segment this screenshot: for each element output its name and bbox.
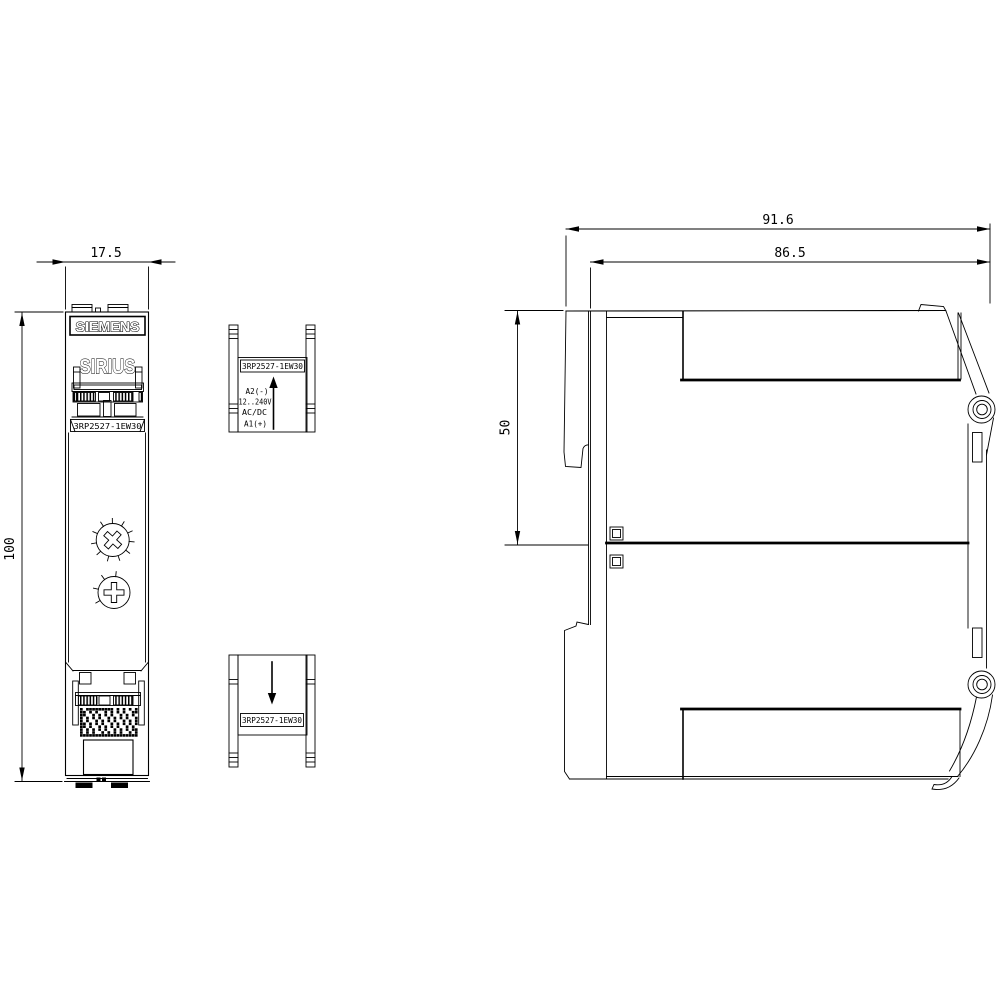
lower-hatch-right <box>114 696 134 705</box>
front-width-dimension: 17.5 <box>37 246 175 309</box>
height-dim-text: 100 <box>3 537 18 560</box>
lower-hatch-left <box>79 696 98 705</box>
detail-top-part-number: 3RP2527-1EW30 <box>242 362 303 371</box>
side-windows <box>610 527 623 568</box>
terminal-a1-label: A1(+) <box>244 420 267 429</box>
base-mark-1 <box>97 778 101 782</box>
front-part-number-text: 3RP2527-1EW30 <box>74 421 142 431</box>
latch-slot-top <box>973 433 983 463</box>
side-upper-height-dimension: 50 <box>499 311 589 546</box>
terminal-window-right <box>115 404 137 417</box>
data-matrix-code <box>80 708 138 737</box>
upper-height-text: 50 <box>499 420 514 436</box>
rotary-dial-plus-icon <box>93 572 130 609</box>
lower-center-box <box>99 696 110 705</box>
terminal-detail-top: 3RP2527-1EW30 A2(-) 12..240V AC/DC A1(+) <box>229 325 315 432</box>
top-terminal-bump-left <box>72 305 92 313</box>
latch-pivot-icon <box>973 676 991 694</box>
clamp-post-left <box>229 655 238 767</box>
technical-drawing-page: SIEMENS SIRIUS 3RP2527-1EW30 <box>0 0 1000 1000</box>
dim-arrow-icon <box>515 531 520 544</box>
dial-plus-slot <box>104 583 124 603</box>
mounting-foot-left <box>76 783 93 789</box>
terminal-crossbar <box>72 383 144 392</box>
side-body-depth-dimension: 86.5 <box>591 246 991 308</box>
upper-recess <box>682 312 962 381</box>
front-height-dimension: 100 <box>3 312 63 782</box>
terminal-a2-label: A2(-) <box>246 387 269 396</box>
front-lower-terminal-block <box>65 662 150 788</box>
dim-arrow-icon <box>977 226 990 231</box>
dim-arrow-icon <box>19 313 24 326</box>
dimensional-drawing-canvas: SIEMENS SIRIUS 3RP2527-1EW30 <box>0 0 1000 1000</box>
blank-label-area <box>84 740 134 775</box>
din-latch-top <box>946 311 995 462</box>
hatch-block-left <box>77 393 96 402</box>
terminal-detail-bottom: 3RP2527-1EW30 <box>229 655 315 767</box>
latch-pivot-icon <box>973 401 991 419</box>
hatch-block-right <box>114 393 134 402</box>
hatch-center-box <box>99 393 110 402</box>
lower-recess <box>682 709 961 779</box>
test-window-left <box>80 673 92 685</box>
dial-x-circle <box>96 524 129 557</box>
base-mark-2 <box>102 778 106 782</box>
terminal-center-tab <box>104 401 112 417</box>
dim-arrow-icon <box>566 226 579 231</box>
dim-arrow-icon <box>515 312 520 325</box>
sealable-cover-tab <box>564 311 589 468</box>
detail-bottom-part-number: 3RP2527-1EW30 <box>242 716 302 725</box>
rotary-dial-x-icon <box>92 519 135 561</box>
side-top-edge <box>566 311 945 312</box>
mounting-foot-right <box>111 783 128 789</box>
chamfer-left <box>66 662 74 671</box>
clamp-post-left <box>229 325 238 432</box>
lower-pin-right <box>139 681 145 725</box>
front-view: SIEMENS SIRIUS 3RP2527-1EW30 <box>65 305 150 789</box>
width-dim-text: 17.5 <box>90 246 121 261</box>
dim-arrow-icon <box>977 259 990 264</box>
body-depth-text: 86.5 <box>774 246 805 261</box>
lower-front-step <box>565 622 589 779</box>
dial-x-slot <box>99 527 126 554</box>
total-depth-text: 91.6 <box>762 213 793 228</box>
dim-arrow-icon <box>19 768 24 781</box>
siemens-logo-text: SIEMENS <box>76 320 140 335</box>
dim-arrow-icon <box>591 259 604 264</box>
top-terminal-bump-right <box>108 305 128 313</box>
arrow-down-icon <box>268 662 276 705</box>
sirius-brand-text: SIRIUS <box>80 356 136 379</box>
side-view <box>564 305 995 790</box>
voltage-range-label: 12..240V <box>239 398 272 407</box>
supply-type-label: AC/DC <box>242 408 267 417</box>
test-window-right <box>124 673 136 685</box>
terminal-window-left <box>78 404 101 417</box>
latch-slot-bottom <box>973 628 983 658</box>
hatch-strip-left <box>74 393 77 402</box>
terminal-crossbar-inner <box>74 385 142 390</box>
dim-arrow-icon <box>149 259 162 264</box>
hatch-strip-right <box>139 393 142 402</box>
chamfer-right <box>141 662 149 671</box>
dial-plus-circle <box>98 577 130 609</box>
dim-arrow-icon <box>53 259 66 264</box>
top-center-nub <box>96 308 101 312</box>
